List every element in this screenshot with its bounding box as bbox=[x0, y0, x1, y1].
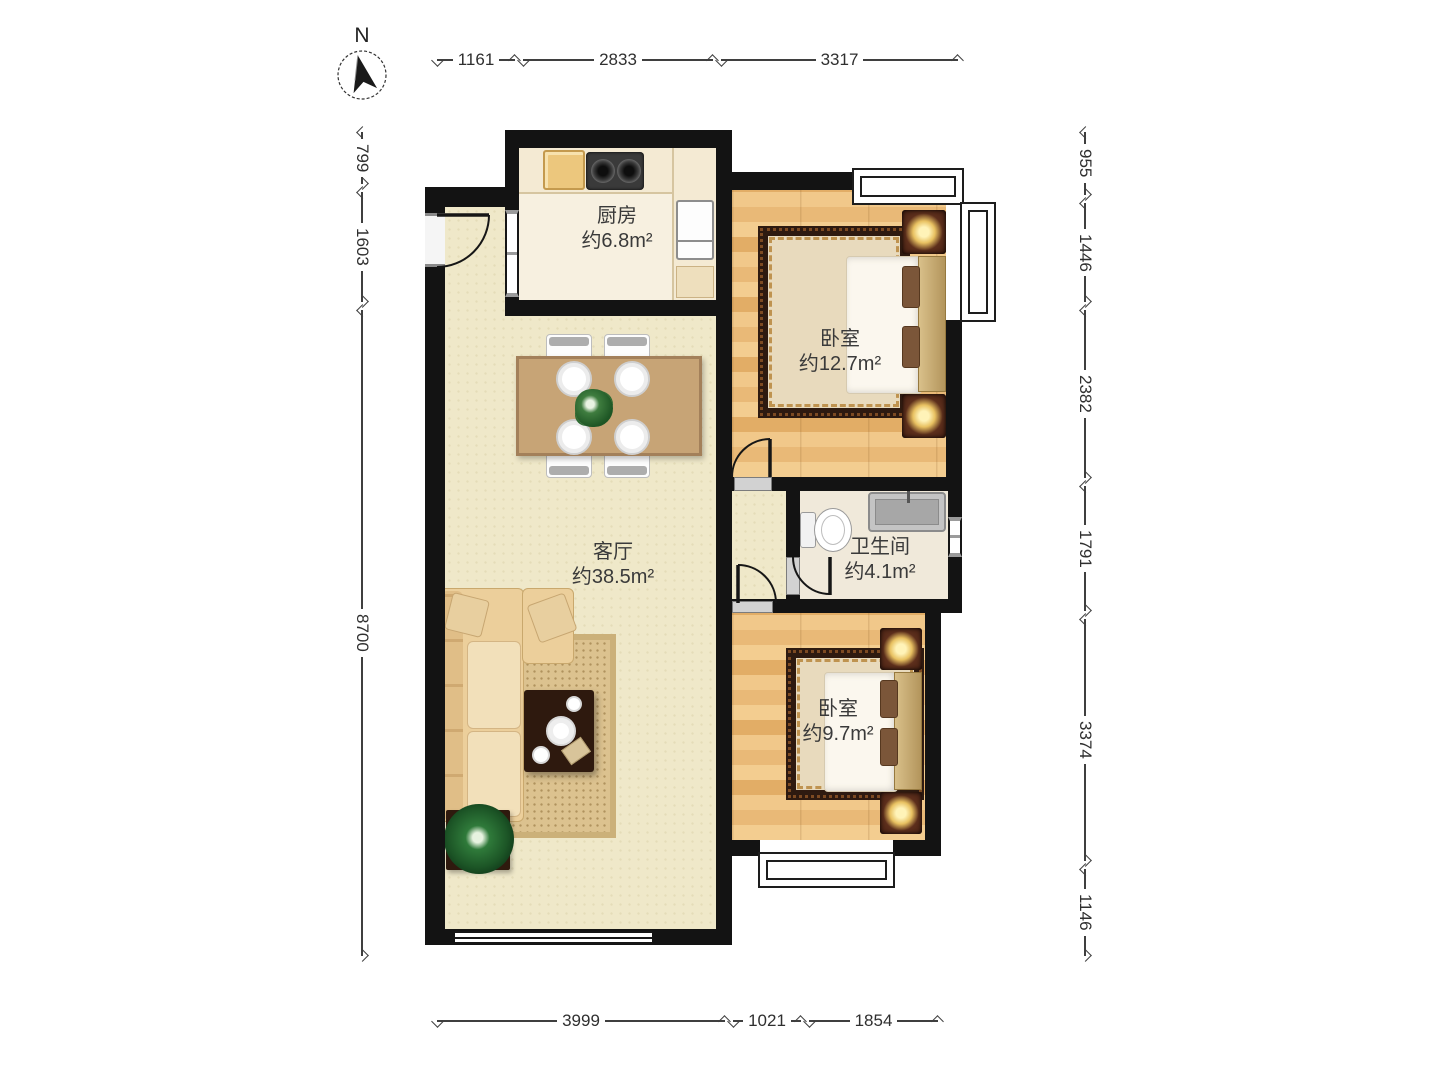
room-area: 约6.8m² bbox=[581, 229, 652, 254]
door-threshold bbox=[786, 557, 800, 595]
sink-icon bbox=[868, 492, 946, 532]
wall bbox=[732, 172, 856, 190]
plant-icon bbox=[444, 804, 514, 874]
wall bbox=[716, 840, 760, 856]
dimension-value: 1791 bbox=[1075, 525, 1095, 573]
dimension-value: 3317 bbox=[816, 50, 864, 70]
room-name: 卫生间 bbox=[844, 535, 915, 560]
dimension-column-left: 799 1603 8700 bbox=[349, 128, 375, 960]
cup-icon bbox=[532, 746, 550, 764]
dimension-value: 1146 bbox=[1075, 889, 1095, 936]
coffee-table-icon bbox=[524, 690, 594, 772]
room-label-bathroom: 卫生间 约4.1m² bbox=[844, 535, 915, 585]
kitchen-cabinet bbox=[676, 266, 714, 298]
dimension-segment: 799 bbox=[352, 128, 372, 188]
burner-icon bbox=[617, 159, 641, 183]
pillow-icon bbox=[880, 680, 898, 718]
dimension-value: 1603 bbox=[352, 223, 372, 271]
room-area: 约9.7m² bbox=[802, 722, 873, 747]
room-area: 约12.7m² bbox=[799, 352, 881, 377]
pillow-icon bbox=[902, 266, 920, 308]
fridge-icon bbox=[676, 200, 714, 260]
wall bbox=[505, 300, 716, 316]
dimension-value: 1161 bbox=[453, 50, 500, 70]
pillow-icon bbox=[902, 326, 920, 368]
dimension-segment: 1603 bbox=[352, 188, 372, 306]
dimension-value: 8700 bbox=[352, 609, 372, 657]
wall bbox=[786, 491, 800, 557]
dimension-row-bottom: 3999 1021 1854 bbox=[433, 1008, 942, 1034]
dimension-value: 1446 bbox=[1075, 229, 1095, 277]
bed-headboard bbox=[918, 256, 946, 392]
north-label: N bbox=[334, 24, 390, 48]
living-room-window bbox=[455, 931, 652, 944]
plate-icon bbox=[614, 419, 650, 455]
wall bbox=[946, 320, 962, 477]
dimension-segment: 955 bbox=[1075, 128, 1095, 199]
dimension-value: 2382 bbox=[1075, 370, 1095, 418]
bed-headboard bbox=[894, 672, 922, 790]
room-name: 客厅 bbox=[572, 540, 654, 565]
cutting-board-icon bbox=[543, 150, 585, 190]
stove-icon bbox=[586, 152, 644, 190]
sofa-seat-cushion bbox=[467, 641, 521, 729]
door-threshold bbox=[732, 601, 773, 613]
bay-window-east bbox=[960, 202, 996, 322]
burner-icon bbox=[591, 159, 615, 183]
dimension-segment: 3999 bbox=[433, 1011, 729, 1031]
wall bbox=[925, 613, 941, 856]
nightstand-lamp-icon bbox=[902, 394, 946, 438]
dimension-value: 3374 bbox=[1075, 716, 1095, 764]
room-name: 厨房 bbox=[581, 204, 652, 229]
dimension-segment: 1161 bbox=[433, 50, 519, 70]
bathroom-window bbox=[948, 517, 962, 557]
dimension-row-top: 1161 2833 3317 bbox=[433, 47, 962, 73]
room-label-kitchen: 厨房 约6.8m² bbox=[581, 204, 652, 254]
dimension-segment: 8700 bbox=[352, 306, 372, 960]
dimension-segment: 1446 bbox=[1075, 199, 1095, 306]
wall bbox=[716, 148, 732, 945]
dimension-segment: 1854 bbox=[805, 1011, 942, 1031]
pillow-icon bbox=[880, 728, 898, 766]
room-area: 约38.5m² bbox=[572, 565, 654, 590]
dimension-segment: 3317 bbox=[717, 50, 962, 70]
room-area: 约4.1m² bbox=[844, 560, 915, 585]
cup-icon bbox=[566, 696, 582, 712]
dimension-value: 3999 bbox=[557, 1011, 605, 1031]
bay-window-south bbox=[758, 852, 895, 888]
dining-table-icon bbox=[516, 356, 702, 456]
room-label-bedroom-north: 卧室 约12.7m² bbox=[799, 327, 881, 377]
dimension-segment: 1021 bbox=[729, 1011, 805, 1031]
wall bbox=[893, 840, 941, 856]
room-name: 卧室 bbox=[802, 697, 873, 722]
bay-window-north bbox=[852, 168, 964, 205]
floor-plan: N bbox=[0, 0, 1440, 1080]
dimension-segment: 1146 bbox=[1075, 865, 1095, 960]
flower-centerpiece-icon bbox=[575, 389, 613, 427]
dimension-segment: 2382 bbox=[1075, 306, 1095, 482]
compass: N bbox=[334, 24, 390, 106]
wall bbox=[505, 130, 732, 148]
dimension-segment: 3374 bbox=[1075, 615, 1095, 865]
hallway-floor bbox=[732, 491, 786, 599]
plate-icon bbox=[614, 361, 650, 397]
room-name: 卧室 bbox=[799, 327, 881, 352]
dimension-value: 799 bbox=[352, 139, 372, 177]
nightstand-lamp-icon bbox=[880, 792, 922, 834]
dimension-segment: 1791 bbox=[1075, 482, 1095, 615]
door-threshold bbox=[734, 477, 772, 491]
dimension-column-right: 955 1446 2382 1791 3374 1146 bbox=[1072, 128, 1098, 960]
dimension-segment: 2833 bbox=[519, 50, 717, 70]
room-label-living: 客厅 约38.5m² bbox=[572, 540, 654, 590]
dimension-value: 1021 bbox=[743, 1011, 791, 1031]
nightstand-lamp-icon bbox=[880, 628, 922, 670]
room-label-bedroom-south: 卧室 约9.7m² bbox=[802, 697, 873, 747]
entry-door-opening bbox=[425, 213, 445, 267]
dimension-value: 955 bbox=[1075, 144, 1095, 182]
kitchen-pass-window bbox=[505, 210, 519, 297]
wall bbox=[425, 187, 445, 945]
nightstand-lamp-icon bbox=[902, 210, 946, 254]
dimension-value: 1854 bbox=[850, 1011, 898, 1031]
north-arrow-icon bbox=[336, 49, 388, 101]
dimension-value: 2833 bbox=[594, 50, 642, 70]
